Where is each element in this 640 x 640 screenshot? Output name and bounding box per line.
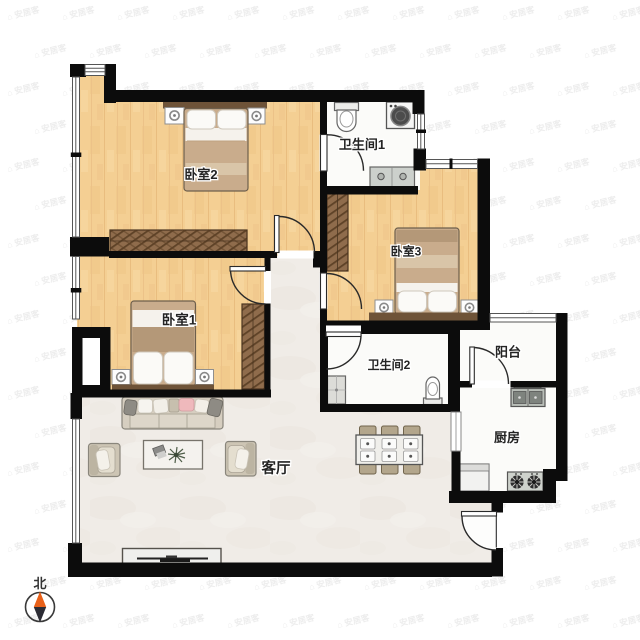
svg-text:阳台: 阳台 xyxy=(495,345,521,360)
svg-text:卫生间1: 卫生间1 xyxy=(339,137,385,152)
svg-text:卧室3: 卧室3 xyxy=(391,244,422,259)
svg-text:厨房: 厨房 xyxy=(494,430,520,445)
svg-text:客厅: 客厅 xyxy=(261,459,291,477)
svg-text:北: 北 xyxy=(33,576,46,591)
svg-text:卧室2: 卧室2 xyxy=(184,167,217,182)
svg-text:卧室1: 卧室1 xyxy=(162,312,197,328)
svg-text:卫生间2: 卫生间2 xyxy=(368,357,411,372)
